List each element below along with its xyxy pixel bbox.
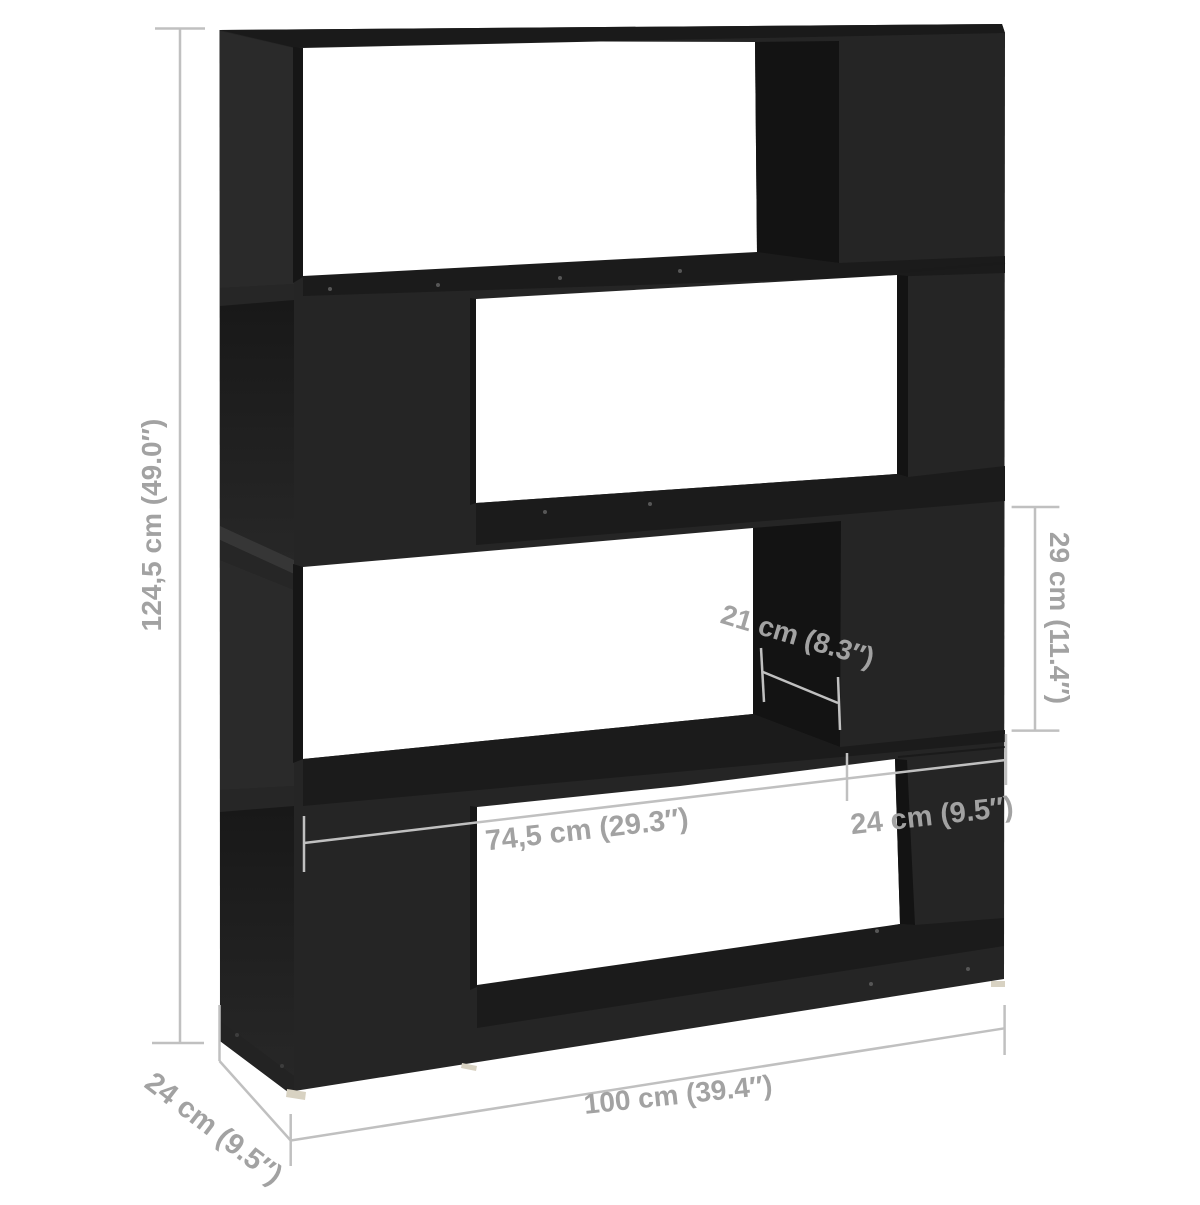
svg-text:29 cm (11.4″): 29 cm (11.4″) — [1044, 532, 1075, 704]
svg-text:124,5 cm (49.0″): 124,5 cm (49.0″) — [136, 419, 167, 632]
